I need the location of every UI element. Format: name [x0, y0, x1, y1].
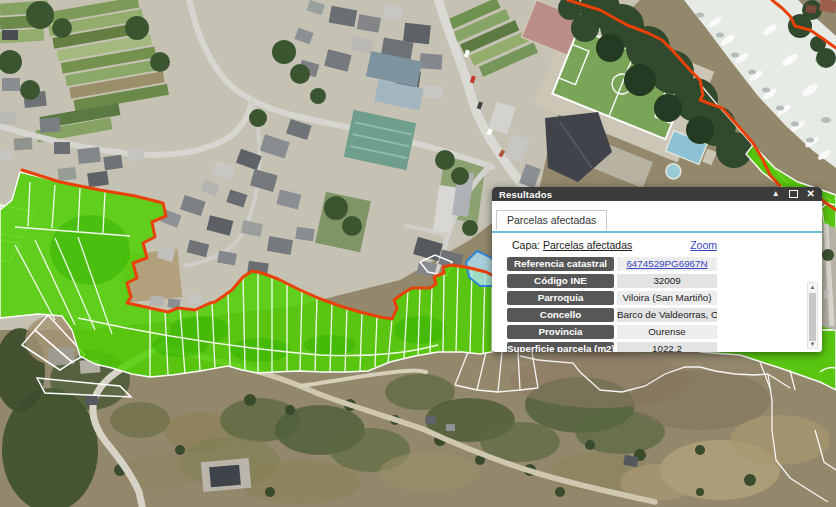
content-scrollbar[interactable]: ▲ ▼	[807, 282, 818, 349]
scroll-up-icon[interactable]: ▲	[808, 283, 817, 291]
parcel-attribute-value: Barco de Valdeorras, O	[617, 308, 717, 322]
cadastral-reference-link[interactable]: 6474529PG6967N	[626, 258, 707, 269]
close-icon[interactable]: ✕	[807, 189, 815, 199]
parcel-attribute-value: Ourense	[617, 325, 717, 339]
parcel-attribute-label: Referencia catastral	[507, 257, 614, 271]
layer-label: Capa:	[512, 239, 540, 251]
parcel-attribute-value: 32009	[617, 274, 717, 288]
dialog-tabbar: Parcelas afectadas	[492, 210, 822, 233]
parcel-attribute-label: Código INE	[507, 274, 614, 288]
results-table: Referencia catastral 6474529PG6967N Códi…	[507, 257, 822, 352]
parcel-attribute-value: 1022.2	[617, 342, 717, 352]
tab-parcelas-afectadas[interactable]: Parcelas afectadas	[496, 210, 607, 230]
zoom-link[interactable]: Zoom	[690, 239, 717, 251]
scroll-down-icon[interactable]: ▼	[808, 340, 817, 348]
dialog-content: Capa: Parcelas afectadas Zoom Referencia…	[492, 233, 822, 352]
parcel-attribute-label: Concello	[507, 308, 614, 322]
map-viewport: Resultados ▲ ✕ Parcelas afectadas Capa: …	[0, 0, 836, 507]
table-row: Parroquia Viloira (San Martiño)	[507, 291, 822, 305]
dialog-title: Resultados	[499, 189, 763, 200]
parcel-attribute-value: Viloira (San Martiño)	[617, 291, 717, 305]
parcel-attribute-value: 6474529PG6967N	[617, 257, 717, 271]
dialog-titlebar[interactable]: Resultados ▲ ✕	[492, 187, 822, 201]
layer-line: Capa: Parcelas afectadas Zoom	[512, 239, 822, 251]
table-row: Concello Barco de Valdeorras, O	[507, 308, 822, 322]
parcel-attribute-label: Superficie parcela (m2)	[507, 342, 614, 352]
right-edge-road	[820, 222, 836, 330]
table-row: Referencia catastral 6474529PG6967N	[507, 257, 822, 271]
table-row: Provincia Ourense	[507, 325, 822, 339]
maximize-icon[interactable]	[789, 190, 798, 198]
parcel-attribute-label: Parroquia	[507, 291, 614, 305]
table-row: Superficie parcela (m2) 1022.2	[507, 342, 822, 352]
parcel-attribute-label: Provincia	[507, 325, 614, 339]
scroll-thumb[interactable]	[809, 293, 816, 341]
results-dialog: Resultados ▲ ✕ Parcelas afectadas Capa: …	[492, 187, 822, 352]
table-row: Código INE 32009	[507, 274, 822, 288]
layer-link[interactable]: Parcelas afectadas	[543, 239, 632, 251]
collapse-icon[interactable]: ▲	[772, 189, 780, 199]
